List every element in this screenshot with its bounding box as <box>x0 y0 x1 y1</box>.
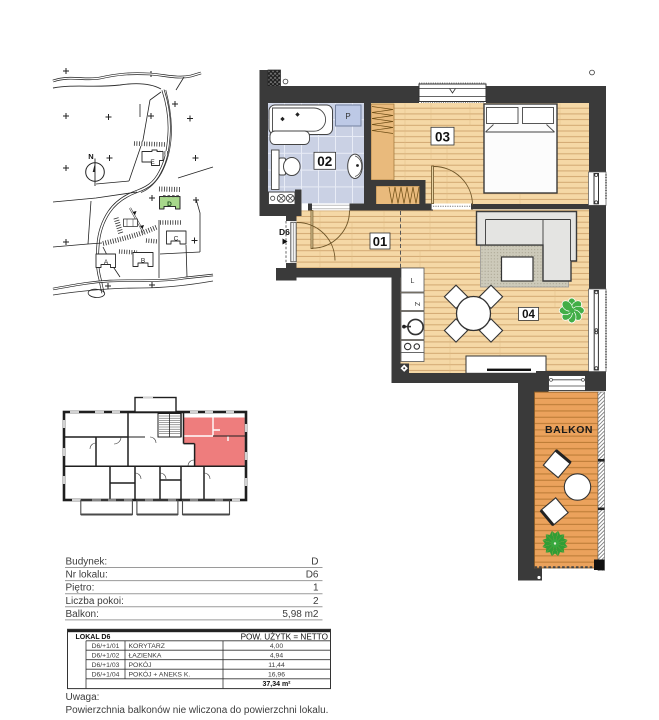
svg-text:Piętro:: Piętro: <box>66 583 95 594</box>
svg-text:1: 1 <box>313 583 319 594</box>
svg-text:POKÓJ + ANEKS K.: POKÓJ + ANEKS K. <box>129 670 191 679</box>
svg-text:Balkon:: Balkon: <box>66 609 99 620</box>
svg-text:C: C <box>174 236 179 243</box>
svg-text:Powierzchnia balkonów nie wlic: Powierzchnia balkonów nie wliczona do po… <box>66 705 329 716</box>
svg-text:BALKON: BALKON <box>545 424 593 436</box>
svg-text:D6: D6 <box>279 227 290 237</box>
svg-text:04: 04 <box>522 309 535 321</box>
svg-text:11,44: 11,44 <box>268 662 285 669</box>
svg-text:16,96: 16,96 <box>268 672 285 679</box>
svg-text:Budynek:: Budynek: <box>66 557 108 568</box>
svg-text:D6/+1/01: D6/+1/01 <box>92 643 120 650</box>
svg-text:03: 03 <box>435 129 451 144</box>
svg-text:2: 2 <box>313 596 319 607</box>
svg-text:B: B <box>141 258 145 265</box>
svg-text:Nr lokalu:: Nr lokalu: <box>66 570 108 581</box>
svg-text:E: E <box>150 159 155 166</box>
svg-text:P: P <box>345 112 350 121</box>
svg-text:POKÓJ: POKÓJ <box>129 660 152 669</box>
svg-text:D6/+1/03: D6/+1/03 <box>92 662 120 669</box>
svg-text:LOKAL D6: LOKAL D6 <box>76 634 111 641</box>
svg-text:D6/+1/02: D6/+1/02 <box>92 652 120 659</box>
svg-text:POW. UŻYTK = NETTO: POW. UŻYTK = NETTO <box>241 631 328 641</box>
svg-text:D: D <box>311 557 318 568</box>
svg-text:D6/+1/04: D6/+1/04 <box>92 672 120 679</box>
svg-text:D: D <box>167 201 172 208</box>
svg-text:Liczba pokoi:: Liczba pokoi: <box>66 596 124 607</box>
svg-text:5,98 m2: 5,98 m2 <box>282 609 319 620</box>
svg-text:N: N <box>88 152 93 161</box>
svg-text:Z: Z <box>413 302 420 307</box>
svg-text:A: A <box>104 259 109 266</box>
svg-text:ŁAZIENKA: ŁAZIENKA <box>129 652 162 659</box>
svg-text:01: 01 <box>373 234 387 249</box>
svg-text:D6: D6 <box>306 570 319 581</box>
svg-text:37,34 m²: 37,34 m² <box>262 681 291 688</box>
svg-text:02: 02 <box>317 154 332 169</box>
svg-text:Uwaga:: Uwaga: <box>66 692 100 703</box>
svg-text:4,00: 4,00 <box>270 643 283 650</box>
svg-text:4,94: 4,94 <box>270 652 283 659</box>
svg-text:KORYTARZ: KORYTARZ <box>129 643 165 650</box>
svg-text:L: L <box>411 278 415 285</box>
